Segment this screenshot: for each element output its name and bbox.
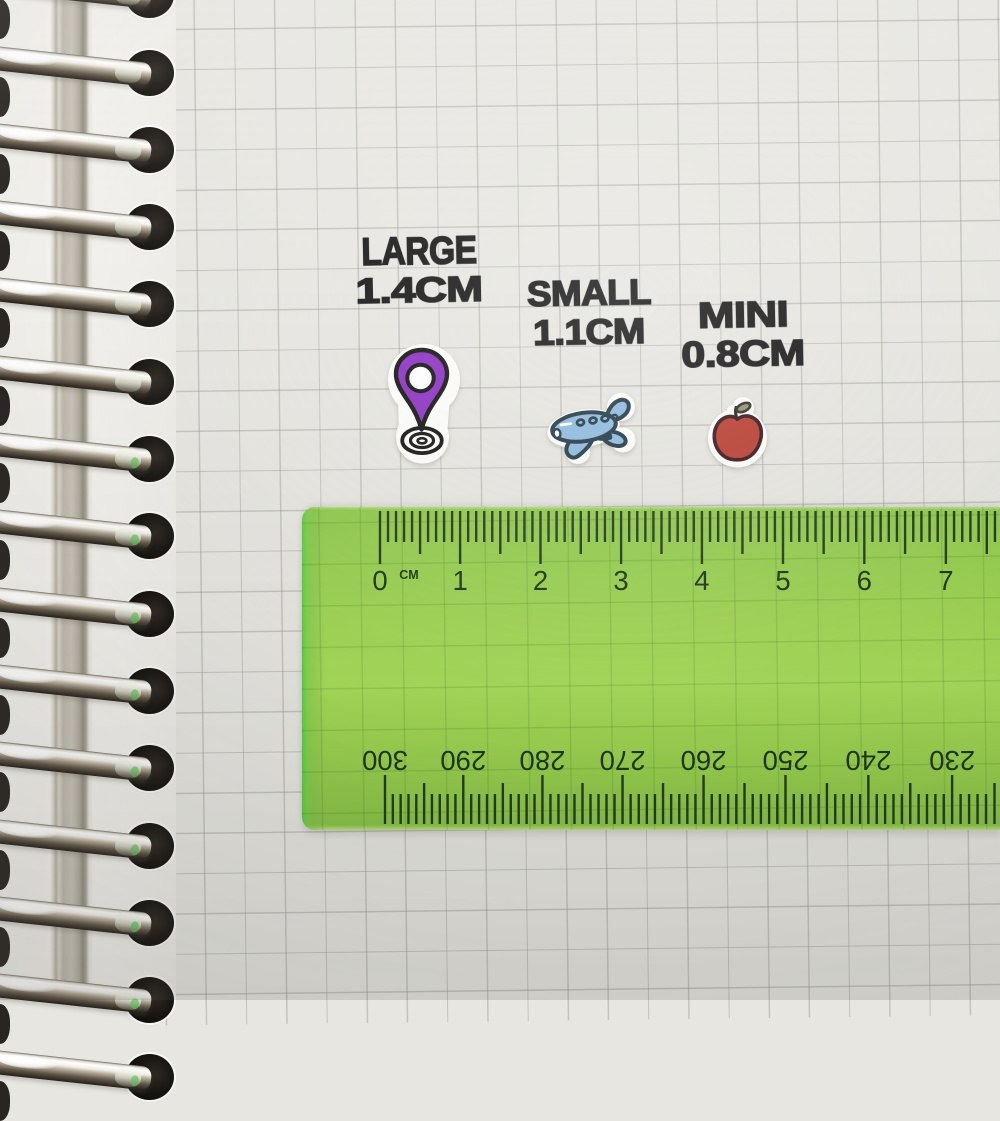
svg-text:300: 300	[362, 745, 408, 776]
svg-text:7: 7	[938, 565, 953, 596]
svg-text:3: 3	[613, 565, 628, 596]
svg-text:6: 6	[857, 565, 872, 596]
svg-text:5: 5	[775, 565, 790, 596]
svg-text:230: 230	[929, 745, 975, 776]
svg-text:240: 240	[845, 745, 891, 776]
svg-text:270: 270	[600, 745, 646, 776]
svg-text:250: 250	[763, 745, 809, 776]
svg-text:1: 1	[452, 565, 467, 596]
svg-text:260: 260	[681, 745, 727, 776]
svg-text:290: 290	[440, 745, 486, 776]
svg-text:4: 4	[694, 565, 709, 596]
svg-text:CM: CM	[399, 568, 418, 582]
svg-text:2: 2	[533, 565, 548, 596]
svg-text:0: 0	[372, 565, 387, 596]
svg-text:280: 280	[519, 745, 565, 776]
